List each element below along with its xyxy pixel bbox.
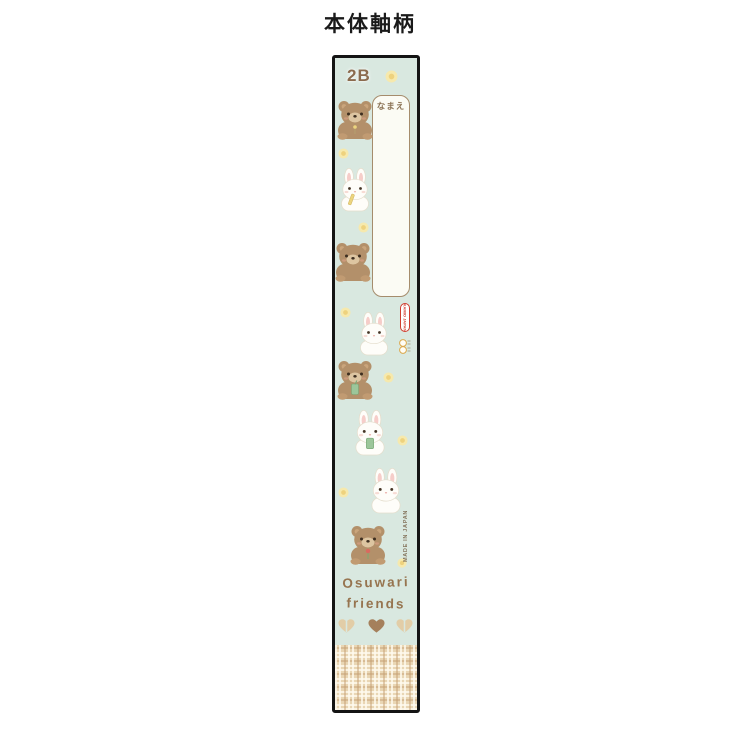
brand-logo-text: KAMIO JAPAN [403, 304, 408, 332]
bear-motif [333, 240, 373, 282]
bow-motif [396, 618, 413, 634]
name-field: なまえ [372, 95, 410, 297]
series-title-line1: Osuwari [335, 574, 417, 591]
brand-logo: KAMIO JAPAN [400, 303, 410, 332]
plaid-band [335, 645, 417, 710]
flower-motif [397, 435, 408, 446]
flower-motif [383, 372, 394, 383]
name-field-label: なまえ [373, 100, 409, 112]
pencil-body: 2B なまえ KAMIO JAPAN MADE IN JAPAN Osuwari… [332, 55, 420, 713]
bow-motif [338, 618, 355, 634]
made-in-japan-label: MADE IN JAPAN [396, 503, 416, 569]
product-image: 本体軸柄 2B なまえ KAMIO JAPAN MADE IN JAPAN Os… [0, 0, 740, 740]
rabbit-motif [352, 410, 388, 456]
flower-motif [385, 70, 398, 83]
bear-motif [335, 358, 375, 400]
bear-motif [335, 98, 375, 140]
page-title: 本体軸柄 [0, 8, 740, 38]
flower-motif [338, 148, 349, 159]
series-title-line2: friends [335, 595, 417, 611]
flower-motif [340, 307, 351, 318]
grade-label: 2B [347, 66, 371, 86]
rings-icon [398, 338, 412, 355]
rabbit-motif [357, 312, 391, 356]
heart-motif [368, 618, 385, 634]
rabbit-motif [338, 168, 372, 212]
flower-motif [358, 222, 369, 233]
bear-motif [348, 523, 388, 565]
flower-motif [338, 487, 349, 498]
